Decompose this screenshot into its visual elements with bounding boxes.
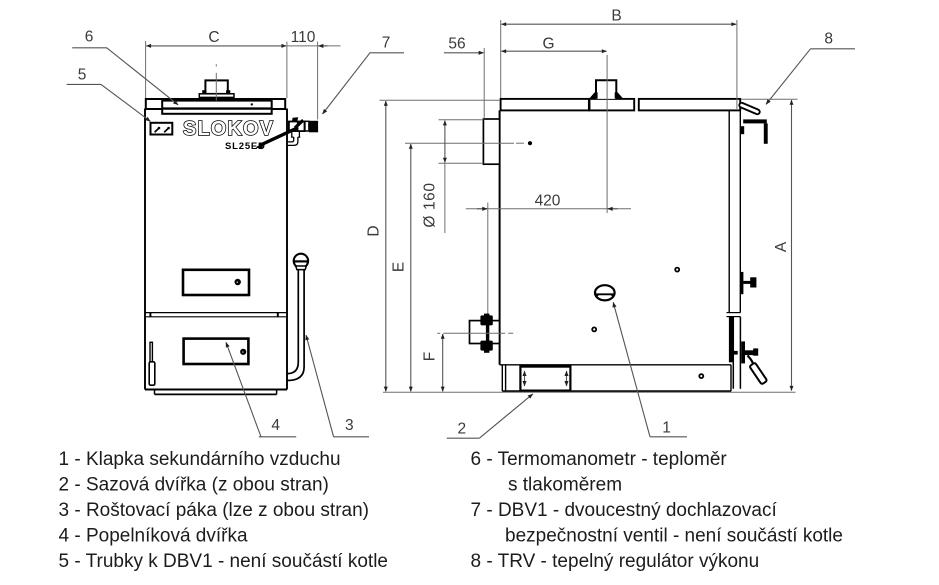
svg-text:110: 110 xyxy=(291,29,316,46)
svg-text:A: A xyxy=(773,241,790,252)
svg-text:C: C xyxy=(208,29,219,46)
svg-text:3 - Roštovací páka (lze z obou: 3 - Roštovací páka (lze z obou stran) xyxy=(59,500,369,521)
svg-text:7: 7 xyxy=(382,34,391,51)
svg-text:s tlakoměrem: s tlakoměrem xyxy=(508,475,622,496)
svg-text:3: 3 xyxy=(345,417,354,434)
svg-text:56: 56 xyxy=(448,36,465,53)
svg-text:4 - Popelníková dvířka: 4 - Popelníková dvířka xyxy=(59,526,248,547)
svg-text:1 - Klapka sekundárního vzduch: 1 - Klapka sekundárního vzduchu xyxy=(59,449,341,470)
svg-text:G: G xyxy=(542,36,554,53)
svg-text:7 - DBV1 - dvoucestný dochlazo: 7 - DBV1 - dvoucestný dochlazovací xyxy=(471,500,778,521)
svg-text:420: 420 xyxy=(535,192,561,209)
svg-text:5: 5 xyxy=(78,66,87,83)
svg-text:SLOKOV: SLOKOV xyxy=(183,118,274,140)
svg-text:E: E xyxy=(391,262,408,272)
svg-text:1: 1 xyxy=(662,419,671,436)
svg-text:2 - Sazová dvířka (z obou stra: 2 - Sazová dvířka (z obou stran) xyxy=(59,475,329,496)
svg-text:8 - TRV - tepelný regulátor vý: 8 - TRV - tepelný regulátor výkonu xyxy=(471,551,760,572)
svg-text:2: 2 xyxy=(457,421,466,438)
svg-text:bezpečnostní ventil - není sou: bezpečnostní ventil - není součástí kotl… xyxy=(505,526,843,547)
svg-text:5 - Trubky k DBV1 - není součá: 5 - Trubky k DBV1 - není součástí kotle xyxy=(59,551,388,572)
svg-text:F: F xyxy=(422,352,439,361)
svg-text:B: B xyxy=(611,7,621,24)
svg-text:Ø 160: Ø 160 xyxy=(422,182,439,227)
svg-text:D: D xyxy=(366,225,383,236)
svg-text:6 - Termomanometr - teploměr: 6 - Termomanometr - teploměr xyxy=(471,449,728,470)
svg-text:8: 8 xyxy=(824,30,833,47)
svg-text:4: 4 xyxy=(271,417,280,434)
svg-text:6: 6 xyxy=(85,29,94,46)
